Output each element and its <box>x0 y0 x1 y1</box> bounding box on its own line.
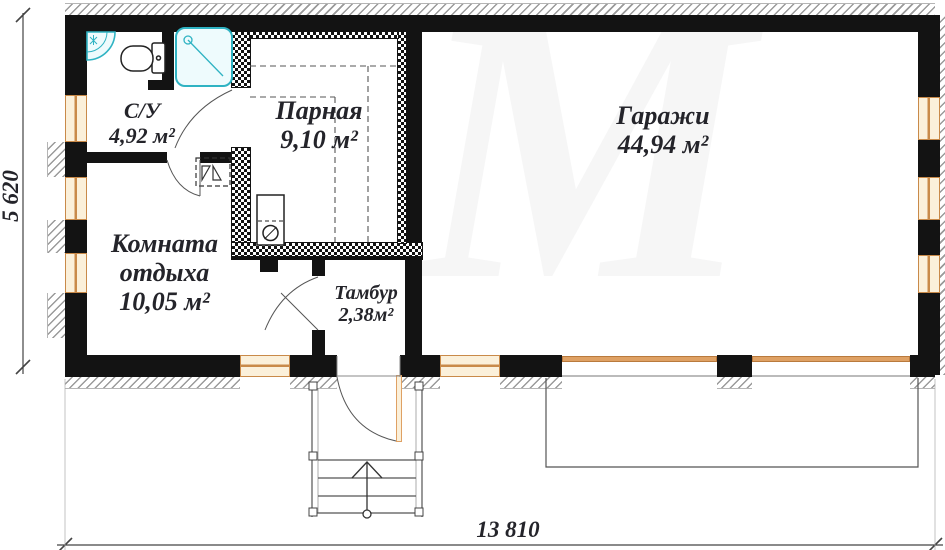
dimension-height-label: 5 620 <box>0 170 23 222</box>
sauna-stove-icon <box>257 195 284 245</box>
dimension-width-label: 13 810 <box>476 517 540 542</box>
room-name: Гаражи <box>588 101 738 130</box>
shower-icon <box>176 28 232 86</box>
room-label-tambur: Тамбур 2,38м² <box>318 282 414 327</box>
water-heater-icon <box>196 158 230 186</box>
room-name: Комната <box>92 229 237 258</box>
room-label-garazhi: Гаражи 44,94 м² <box>588 101 738 159</box>
room-area: 10,05 м² <box>92 287 237 316</box>
room-label-komnata-otdykha: Комната отдыха 10,05 м² <box>92 229 237 316</box>
stairs-direction-arrow <box>352 462 382 518</box>
room-name-2: отдыха <box>92 258 237 287</box>
room-name: С/У <box>88 99 196 124</box>
room-area: 44,94 м² <box>588 130 738 159</box>
corner-sink-icon <box>87 32 115 60</box>
floor-plan: М <box>0 0 945 550</box>
garage-apron-outline <box>546 378 918 467</box>
entrance-porch <box>309 382 423 518</box>
room-label-parnaya: Парная 9,10 м² <box>253 96 385 154</box>
entrance-door-arc <box>337 377 396 441</box>
su-door-arc <box>167 160 200 196</box>
opening-edges <box>337 356 910 377</box>
tambur-door-arc <box>265 277 318 330</box>
room-name: Парная <box>253 96 385 125</box>
room-label-su: С/У 4,92 м² <box>88 99 196 148</box>
room-area: 9,10 м² <box>253 125 385 154</box>
room-name: Тамбур <box>318 282 414 304</box>
toilet-icon <box>121 43 165 73</box>
room-area: 2,38м² <box>318 304 414 326</box>
room-area: 4,92 м² <box>88 124 196 149</box>
